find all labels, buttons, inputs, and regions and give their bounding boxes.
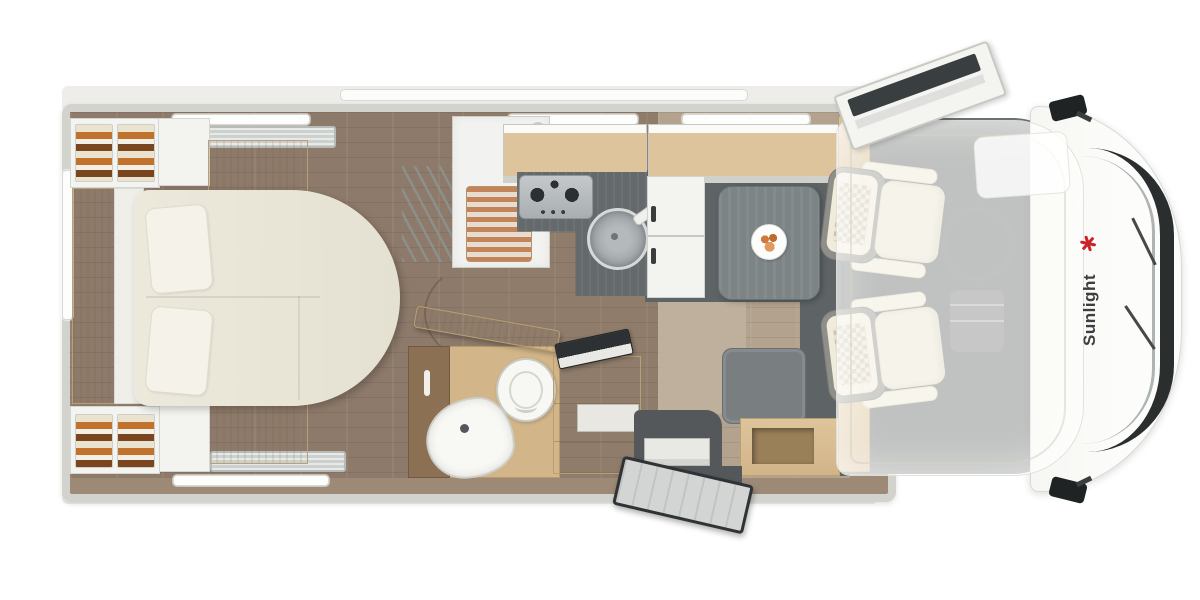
shower-glass-door	[402, 166, 452, 262]
storage-bench-cavity	[752, 428, 814, 464]
refrigerator	[647, 176, 705, 298]
motorhome-floorplan: Sunlight	[0, 0, 1200, 600]
clothes-shelf	[117, 414, 155, 468]
overhead-cabinet-bedroom-top	[158, 118, 210, 186]
clothes-shelf	[75, 414, 113, 468]
fridge-handle	[651, 248, 656, 264]
toilet-lid-hinge	[515, 400, 537, 413]
headboard-bottom	[208, 404, 308, 464]
bed-seam	[146, 296, 320, 298]
overhead-locker-dinette	[648, 124, 840, 178]
awning-rail	[340, 89, 748, 101]
sideboard-step	[577, 404, 639, 432]
overhead-cabinet-bedroom-bottom	[158, 404, 210, 472]
pillow	[144, 305, 213, 396]
plate-of-food	[751, 224, 787, 260]
window-bottom-bedroom	[173, 475, 329, 486]
basin-faucet	[460, 424, 469, 433]
towel-rail	[424, 370, 430, 396]
gas-hob	[519, 175, 593, 219]
sink-drain	[611, 233, 618, 240]
duvet-fold	[298, 296, 300, 400]
fridge-handle	[651, 206, 656, 222]
bed-side-shelf	[72, 188, 116, 404]
clothes-shelf	[75, 124, 113, 182]
windshield	[1088, 148, 1174, 452]
overhead-locker-kitchen	[503, 124, 647, 180]
pillow	[144, 203, 213, 294]
brand-logo-text: Sunlight	[1080, 252, 1100, 368]
clothes-shelf	[117, 124, 155, 182]
overcab-pillow	[973, 131, 1071, 199]
bench-seat-cushion	[722, 348, 806, 424]
